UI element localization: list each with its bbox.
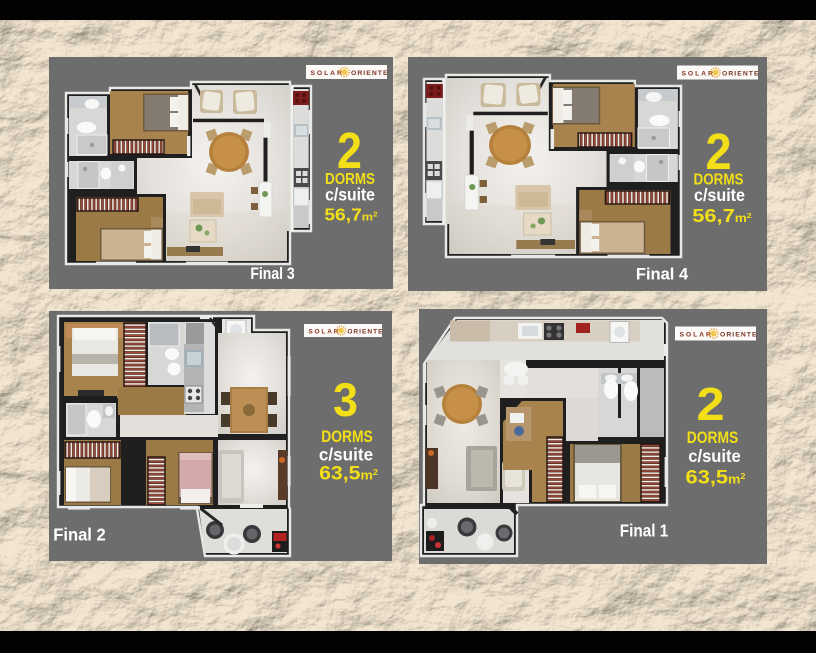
- svg-text:Final 4: Final 4: [636, 266, 689, 284]
- svg-text:Final 1: Final 1: [620, 520, 668, 540]
- svg-text:c/suite: c/suite: [688, 445, 741, 466]
- svg-text:c/suite: c/suite: [325, 185, 375, 205]
- svg-text:3: 3: [333, 374, 358, 426]
- svg-text:c/suite: c/suite: [694, 185, 745, 205]
- svg-text:Final 3: Final 3: [250, 265, 294, 283]
- svg-text:2: 2: [696, 379, 724, 430]
- svg-text:Final 2: Final 2: [53, 524, 105, 545]
- svg-text:c/suite: c/suite: [319, 444, 373, 465]
